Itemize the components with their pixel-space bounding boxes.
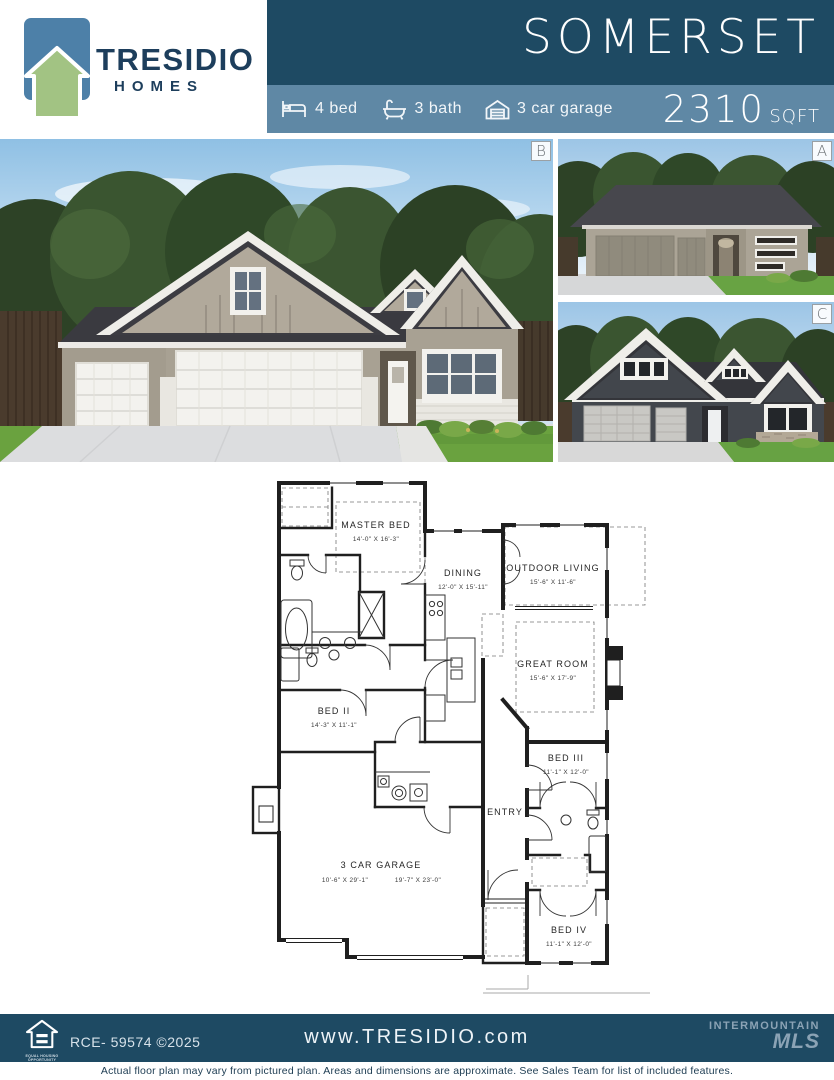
spec-beds-label: 4 bed [315, 100, 358, 118]
equal-housing-logo: EQUAL HOUSING OPPORTUNITY [22, 1019, 62, 1062]
sqft-readout: 2310 SQFT [620, 88, 820, 131]
eho-line2: OPPORTUNITY [22, 1058, 62, 1062]
equal-housing-icon [24, 1019, 60, 1049]
brand-subtitle: HOMES [114, 78, 204, 95]
room-outdoor-living: OUTDOOR LIVING [506, 563, 599, 573]
room-garage-dims-left: 10'-6" X 29'-1" [322, 877, 368, 884]
room-master-bed-dims: 14'-0" X 16'-3" [353, 536, 399, 543]
house-a [570, 185, 822, 276]
room-outdoor-living-dims: 15'-6" X 11'-6" [530, 579, 576, 586]
spec-beds: 4 bed [280, 99, 358, 119]
spec-garage-label: 3 car garage [517, 100, 613, 118]
house-rendering-b [0, 139, 553, 462]
room-bed3-dims: 11'-1" X 12'-0" [543, 769, 589, 776]
floor-plan-interior-walls [253, 483, 607, 963]
room-garage-dims-right: 19'-7" X 23'-0" [395, 877, 441, 884]
mls-line2: MLS [709, 1030, 820, 1054]
ground-lines [483, 975, 650, 993]
website-link[interactable]: www.TRESIDIO.com [304, 1026, 530, 1049]
sqft-unit: SQFT [769, 106, 820, 127]
room-labels: MASTER BED 14'-0" X 16'-3" DINING 12'-0"… [311, 520, 600, 948]
sqft-value: 2310 [663, 88, 765, 131]
photo-elevation-c: C [558, 302, 834, 462]
sliding-door [515, 607, 593, 610]
spec-baths-label: 3 bath [415, 100, 462, 118]
tresidio-home-logo-icon [18, 14, 96, 122]
photo-label-b: B [531, 141, 551, 161]
fireplace [607, 646, 623, 700]
brand-name: TRESIDIO [96, 42, 254, 78]
photo-label-a: A [812, 141, 832, 161]
house-rendering-c [558, 302, 834, 462]
garage-icon [485, 99, 510, 120]
plan-title-band: SOMERSET [267, 0, 834, 85]
room-garage: 3 CAR GARAGE [341, 860, 422, 870]
tresidio-logo: TRESIDIO HOMES [18, 14, 258, 124]
photo-label-c: C [812, 304, 832, 324]
room-entry: ENTRY [487, 807, 523, 817]
license-number: RCE- 59574 ©2025 [70, 1034, 200, 1050]
entry-threshold [484, 899, 526, 903]
room-dining: DINING [444, 568, 482, 578]
bath-icon [381, 99, 408, 120]
footer-band: EQUAL HOUSING OPPORTUNITY RCE- 59574 ©20… [0, 1014, 834, 1062]
room-bed4-dims: 11'-1" X 12'-0" [546, 941, 592, 948]
photo-elevation-a: A [558, 139, 834, 295]
photo-main-elevation-b: B [0, 139, 553, 462]
spec-list: 4 bed 3 bath [267, 99, 613, 120]
room-bed2-dims: 14'-3" X 11'-1" [311, 722, 357, 729]
spec-garage: 3 car garage [485, 99, 613, 120]
spec-baths: 3 bath [381, 99, 462, 120]
room-bed2: BED II [318, 706, 351, 716]
room-dining-dims: 12'-0" X 15'-11" [438, 584, 488, 591]
disclaimer-text: Actual floor plan may vary from pictured… [0, 1065, 834, 1077]
intermountain-mls-logo: INTERMOUNTAIN MLS [709, 1020, 820, 1054]
plan-name: SOMERSET [522, 10, 820, 65]
room-master-bed: MASTER BED [341, 520, 411, 530]
fence-left [0, 311, 62, 429]
room-bed3: BED III [548, 753, 584, 763]
house-rendering-a [558, 139, 834, 295]
room-great-room: GREAT ROOM [517, 659, 589, 669]
room-great-room-dims: 15'-6" X 17'-9" [530, 675, 576, 682]
bed-icon [280, 99, 308, 119]
flyer-page: TRESIDIO HOMES SOMERSET 4 bed [0, 0, 834, 1080]
floor-plan: MASTER BED 14'-0" X 16'-3" DINING 12'-0"… [235, 466, 650, 1006]
room-bed4: BED IV [551, 925, 587, 935]
